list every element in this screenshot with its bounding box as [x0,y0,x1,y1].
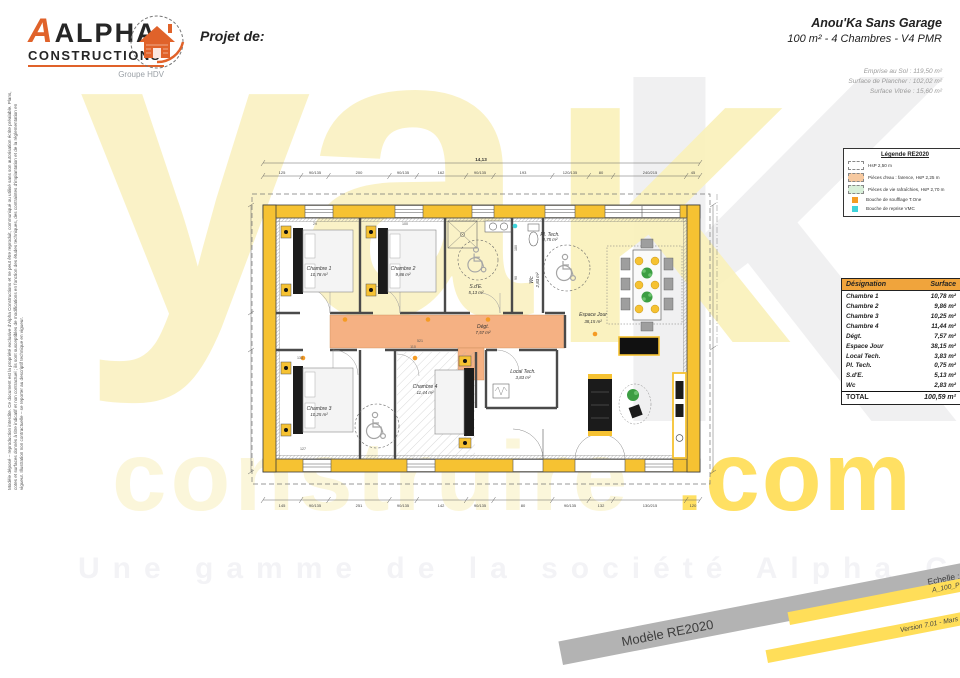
window [472,206,494,218]
row-value: 11,44 m² [931,323,956,330]
dim-value: 130/215 [643,503,658,508]
inner-dim: 29 [313,222,317,226]
total-value: 100,59 m² [924,394,956,401]
plant-icon [627,389,639,401]
dim-value: 90/135 [564,503,577,508]
legend-item: Pièces d'eau : faïence, HsP 2,25 m [848,173,960,182]
dim-value: 125 [279,170,286,175]
bottom-dimension-values: 145 90/135 251 90/135 142 90/135 80 90/1… [279,503,697,508]
bed-chambre1 [281,226,353,296]
room-area-pl-tech: 0,75 m² [543,237,558,242]
french-door [575,434,625,472]
legend-item: Bouche de soufflage T.One [848,197,960,203]
floor-plan: Chambre 1 10,78 m² Chambre 2 9,86 m² S.d… [245,148,745,518]
row-value: 0,75 m² [934,362,956,369]
row-value: 2,83 m² [934,382,956,389]
window [407,460,435,472]
water-heater [493,384,509,398]
legend-swatch-reprise-dot [852,206,858,212]
room-area-chambre2: 9,86 m² [396,272,411,277]
room-area-chambre3: 10,25 m² [310,412,328,417]
plan-sheet: K ya K construire .com Une gamme de la s… [0,0,960,678]
legend-swatch-hsp [848,161,864,170]
project-label: Projet de: [200,28,265,44]
house-icon [139,24,175,58]
room-area-chambre4: 11,44 m² [416,390,434,395]
row-name: Espace Jour [846,343,883,350]
legal-text: Modèle déposé – reproduction interdite. … [7,90,25,490]
legend-label: Bouche de reprise VMC [866,206,915,211]
dim-value: 80 [599,170,604,175]
inner-dim: 521 [417,339,423,343]
legend-item: Pièces de vie rafraîchies, HsP 2,70 m [848,185,960,194]
table-row: Wc2,83 m² [842,381,960,391]
dim-value: 90/135 [309,503,322,508]
bed-chambre4 [435,356,474,448]
row-name: Chambre 3 [846,313,879,320]
legend-swatch-soufflage-dot [852,197,858,203]
dim-value: 90/135 [309,170,322,175]
row-name: Local Tech. [846,353,880,360]
legend-label: HsP 2,50 m [868,163,892,168]
logo-letter-a: A [28,12,55,50]
toilet [528,224,539,246]
metric-vitree: Surface Vitrée : 15,60 m² [787,87,942,97]
pmr-circle-sde [458,240,498,280]
bay-window [605,206,680,218]
row-name: Chambre 2 [846,303,879,310]
alpha-constructions-logo: AALPHA CONSTRUCTIONS Groupe HDV [28,12,198,104]
tv-bench [619,337,659,355]
window [303,460,331,472]
room-area-espace-jour: 38,15 m² [584,319,602,324]
dim-value: 145 [279,503,286,508]
entry-door [513,429,543,472]
room-area-degt: 7,57 m² [476,330,491,335]
dim-value: 90/135 [474,170,487,175]
inner-dim: 133 [297,356,303,360]
dim-value: 120 [690,503,697,508]
row-value: 7,57 m² [934,333,956,340]
window [645,460,673,472]
table-row: S.d'E.5,13 m² [842,371,960,381]
room-area-wc: 2,83 m² [535,272,540,288]
dim-value: 80 [521,503,526,508]
plant-icon [642,268,653,279]
row-value: 10,78 m² [931,293,956,300]
window [545,206,575,218]
bed-chambre2 [366,226,436,296]
sofa [588,374,612,436]
metric-plancher: Surface de Plancher : 102,02 m² [787,77,942,87]
room-area-chambre1: 10,78 m² [310,272,328,277]
row-value: 10,25 m² [931,313,956,320]
table-total-row: TOTAL 100,59 m² [842,391,960,404]
dining-table [607,239,682,331]
dim-value: 200 [356,170,363,175]
plant-icon [642,292,653,303]
dim-value: 45 [691,170,696,175]
row-name: Pl. Tech. [846,362,872,369]
dimension-line-right [710,194,717,474]
col-surface: Surface [930,281,956,288]
top-dimension-values: 125 90/135 200 90/135 162 90/135 193 120… [279,170,696,175]
project-metrics: Emprise au Sol : 119,50 m² Surface de Pl… [787,67,942,96]
armchair-plant [619,384,651,424]
inner-dim: 110 [410,345,416,349]
dimension-line-left [248,203,254,474]
metric-emprise: Emprise au Sol : 119,50 m² [787,67,942,77]
inner-dim: 90 [514,276,518,280]
dim-value: 90/135 [474,503,487,508]
table-row: Chambre 110,78 m² [842,291,960,301]
dim-value: 90/135 [397,503,410,508]
row-value: 5,13 m² [934,372,956,379]
legend-item: Bouche de reprise VMC [848,206,960,212]
ribbon-model: Modèle RE2020 Echelle : 1/75è [558,557,960,665]
pmr-circle-hall [355,404,399,448]
table-row: Pl. Tech.0,75 m² [842,361,960,371]
inner-dim: 100 [402,222,408,226]
dim-value: 251 [356,503,363,508]
total-label: TOTAL [846,394,869,401]
project-subtitle: 100 m² - 4 Chambres - V4 PMR [787,33,942,45]
project-title: Anou'Ka Sans Garage [787,16,942,30]
legend-title: Légende RE2020 [848,152,960,158]
table-row: Chambre 29,86 m² [842,301,960,311]
table-row: Local Tech.3,83 m² [842,351,960,361]
row-name: Wc [846,382,855,389]
ribbon-version-label: Version 7.01 - Mars 2023 [900,613,960,634]
surface-table-header: Désignation Surface [842,279,960,291]
project-header: Anou'Ka Sans Garage 100 m² - 4 Chambres … [787,16,942,96]
dim-value: 120/135 [563,170,578,175]
surface-table: Désignation Surface Chambre 110,78 m² Ch… [841,278,960,405]
row-value: 9,86 m² [934,303,956,310]
col-designation: Désignation [846,281,886,288]
legend-label: Bouche de soufflage T.One [866,197,921,202]
room-area-sde: 5,13 m² [469,290,484,295]
legend-swatch-green [848,185,864,194]
legend-label: Pièces d'eau : faïence, HsP 2,25 m [868,175,940,180]
pmr-circle-sejour [544,245,590,291]
row-value: 3,83 m² [934,353,956,360]
dim-value: 90/135 [397,170,410,175]
dim-value: 162 [438,170,445,175]
row-name: S.d'E. [846,372,863,379]
legend-label: Pièces de vie rafraîchies, HsP 2,70 m [868,187,945,192]
logo-house-stamp [124,12,190,78]
row-name: Dégt. [846,333,862,340]
legend-swatch-orange [848,173,864,182]
shower [448,221,477,248]
double-washbasin [485,221,511,232]
table-row: Chambre 411,44 m² [842,321,960,331]
row-name: Chambre 1 [846,293,879,300]
reprise-dots [513,224,518,229]
legend-box: Légende RE2020 HsP 2,50 m Pièces d'eau :… [843,148,960,217]
dim-value: 132 [598,503,605,508]
bed-chambre3 [281,362,353,436]
room-area-local-tech: 3,83 m² [516,375,531,380]
row-value: 38,15 m² [931,343,956,350]
table-row: Chambre 310,25 m² [842,311,960,321]
inner-dim: 127 [300,447,306,451]
dim-value: 240/215 [643,170,658,175]
legend-item: HsP 2,50 m [848,161,960,170]
kitchen-counter [673,373,686,458]
watermark-tagline: Une gamme de la société Alpha Constructi… [78,552,960,586]
table-row: Dégt.7,57 m² [842,331,960,341]
table-row: Espace Jour38,15 m² [842,341,960,351]
row-name: Chambre 4 [846,323,879,330]
overall-dimension-top: 14,13 [475,157,487,162]
window [395,206,423,218]
inner-dim: 180 [514,245,518,251]
room-label-espace-jour: Espace Jour [579,312,607,318]
dim-value: 193 [520,170,527,175]
dim-value: 142 [438,503,445,508]
window [305,206,333,218]
ribbon-model-label: Modèle RE2020 [620,616,714,649]
